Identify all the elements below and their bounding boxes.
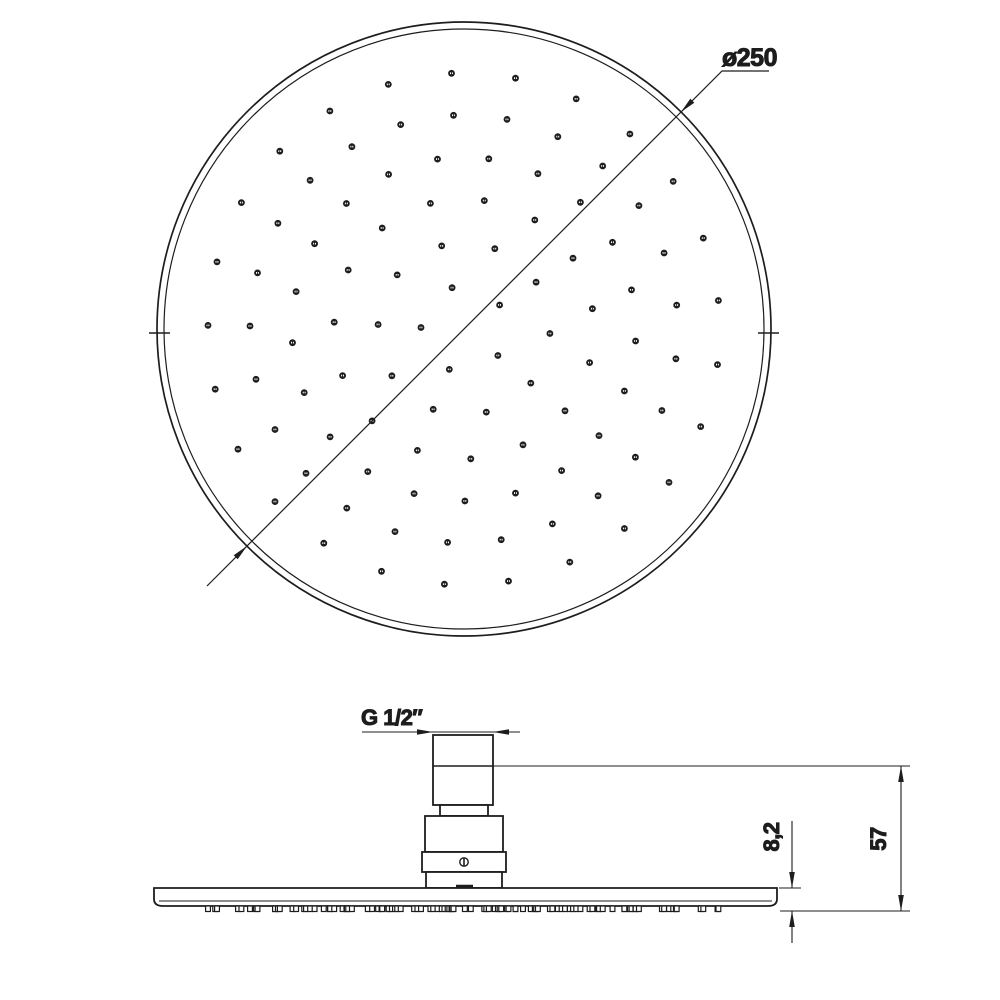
- nozzle-tip-tick: [463, 906, 468, 912]
- nozzle-dot: [438, 243, 445, 250]
- nozzle-dot: [666, 479, 673, 486]
- nozzle-dot: [504, 116, 511, 123]
- nozzle-tip-tick: [662, 906, 667, 912]
- nozzle-dot: [293, 288, 300, 295]
- nozzle-tip-tick: [600, 906, 605, 912]
- nozzle-dot: [673, 302, 680, 309]
- nozzle-dot: [700, 235, 707, 242]
- nozzle-dot: [628, 287, 635, 294]
- nozzle-dot: [214, 259, 221, 266]
- diameter-dimension-line: [207, 71, 769, 586]
- nozzle-dot: [427, 200, 434, 207]
- nozzle-dot: [485, 155, 492, 162]
- dimension-arrowhead: [898, 895, 904, 911]
- nozzle-dot: [418, 324, 425, 331]
- nozzle-tip-tick: [513, 906, 518, 912]
- nozzle-dot: [531, 217, 538, 224]
- technical-drawing-page: ø250: [0, 0, 1000, 1000]
- nozzle-dot: [272, 498, 279, 505]
- nozzle-dot: [212, 386, 219, 393]
- nozzle-dot: [375, 321, 382, 328]
- nozzle-tip-tick: [578, 906, 583, 912]
- nozzle-dot: [343, 505, 350, 512]
- dimension-arrowhead: [417, 729, 433, 735]
- nozzle-dot: [446, 366, 453, 373]
- nozzle-dot: [397, 121, 404, 128]
- nozzle-dot: [349, 143, 356, 150]
- nozzle-dot: [235, 446, 242, 453]
- nozzle-dot: [441, 581, 448, 588]
- nozzle-dot: [339, 372, 346, 379]
- nozzle-dot: [385, 171, 392, 178]
- thickness-arrowheads: [789, 872, 795, 927]
- nozzle-dot: [566, 559, 573, 566]
- nozzle-dot: [491, 245, 498, 252]
- nozzle-dot: [254, 270, 261, 277]
- nozzle-tip-tick: [451, 906, 456, 912]
- connector-neck: [440, 805, 488, 816]
- nozzle-tip-tick: [637, 906, 642, 912]
- nozzle-tip-tick: [206, 906, 211, 912]
- nozzle-dot: [621, 388, 628, 395]
- thickness-label: 8,2: [759, 822, 784, 851]
- nozzle-dot: [276, 148, 283, 155]
- nozzle-dot: [562, 407, 569, 414]
- side-view: [154, 735, 777, 912]
- nozzle-tip-tick: [321, 906, 326, 912]
- nozzle-dot: [392, 528, 399, 535]
- nozzle-dot: [289, 339, 296, 346]
- nozzle-dot: [697, 423, 704, 430]
- nozzle-dot: [498, 536, 505, 543]
- nozzle-dot: [483, 409, 490, 416]
- nozzle-dot: [714, 361, 721, 368]
- nozzle-dot: [554, 133, 561, 140]
- nozzle-dot: [378, 568, 385, 575]
- nozzle-tip-tick: [550, 906, 555, 912]
- nozzle-dot: [495, 352, 502, 359]
- nozzle-dot: [379, 225, 386, 232]
- nozzle-dot: [434, 156, 441, 163]
- nozzle-tip-tick: [277, 906, 282, 912]
- nozzle-dot: [636, 202, 643, 209]
- dimension-diameter: ø250: [207, 44, 777, 586]
- nozzle-tip-tick: [468, 906, 473, 912]
- nozzle-dot: [547, 330, 554, 337]
- nozzle-dot: [450, 112, 457, 119]
- nozzle-tip-tick: [215, 906, 220, 912]
- nozzle-dot: [570, 255, 577, 262]
- dimension-thickness: 8,2: [759, 821, 801, 943]
- nozzle-tip-tick: [486, 906, 491, 912]
- nozzle-tip-tick: [398, 906, 403, 912]
- nozzle-dot: [533, 279, 540, 286]
- dimension-thread: G 1/2″: [361, 705, 520, 735]
- nozzle-tip-tick: [622, 906, 627, 912]
- nozzle-dot: [307, 177, 314, 184]
- nozzle-tip-tick: [350, 906, 355, 912]
- nozzle-dot: [343, 200, 350, 207]
- nozzle-dot: [627, 131, 634, 138]
- nozzle-dot: [558, 467, 565, 474]
- nozzle-dot: [327, 434, 334, 441]
- nozzle-dot: [448, 70, 455, 77]
- swivel-upper-drum: [425, 816, 503, 852]
- nozzle-dot: [715, 297, 722, 304]
- nozzle-tip-tick: [255, 906, 260, 912]
- nozzle-tip-tick: [506, 906, 511, 912]
- nozzle-dot: [205, 322, 212, 329]
- nozzle-dot: [389, 372, 396, 379]
- nozzle-dot: [589, 305, 596, 312]
- nozzle-tip-tick: [674, 906, 679, 912]
- nozzle-dot: [449, 284, 456, 291]
- dimension-arrowhead: [898, 766, 904, 782]
- nozzle-dot: [430, 406, 437, 413]
- height-label: 57: [866, 827, 891, 851]
- nozzle-tip-tick: [536, 906, 541, 912]
- nozzle-dot: [595, 492, 602, 499]
- nozzle-dot: [577, 199, 584, 206]
- nozzle-dot: [303, 470, 310, 477]
- dimension-arrowhead: [493, 729, 509, 735]
- nozzle-dot: [385, 81, 392, 88]
- nozzle-dot: [411, 490, 418, 497]
- nozzle-dot: [505, 578, 512, 585]
- nozzle-dot: [512, 75, 519, 82]
- nozzle-tip-tick: [701, 906, 706, 912]
- dimension-arrowhead: [789, 911, 795, 927]
- nozzle-dot: [301, 389, 308, 396]
- nozzle-dot: [275, 220, 282, 227]
- nozzle-tip-tick: [312, 906, 317, 912]
- nozzle-dot: [444, 539, 451, 546]
- inlet-pipe: [433, 735, 493, 805]
- nozzle-dot: [311, 240, 318, 247]
- nozzle-dot: [414, 447, 421, 454]
- nozzle-tip-tick: [419, 906, 424, 912]
- nozzle-dot: [670, 178, 677, 185]
- nozzle-dot: [331, 319, 338, 326]
- nozzle-dot: [394, 272, 401, 279]
- nozzle-dot: [573, 96, 580, 103]
- nozzle-dot: [238, 199, 245, 206]
- nozzle-tip-tick: [248, 906, 253, 912]
- shower-plate: [154, 888, 777, 906]
- nozzle-tip-tick: [610, 906, 615, 912]
- nozzle-tip-tick: [294, 906, 299, 912]
- nozzle-dot: [673, 355, 680, 362]
- nozzle-dot: [462, 498, 469, 505]
- nozzle-tip-tick: [239, 906, 244, 912]
- nozzle-dot: [247, 323, 254, 330]
- nozzle-dot: [621, 525, 628, 532]
- nozzle-dot: [596, 432, 603, 439]
- nozzle-dot: [632, 454, 639, 461]
- dimension-arrowhead: [789, 872, 795, 888]
- nozzle-dot: [661, 250, 668, 257]
- nozzle-dot: [481, 197, 488, 204]
- nozzle-dot: [512, 490, 519, 497]
- nozzle-dot: [467, 455, 474, 462]
- nozzle-dot: [320, 540, 327, 547]
- nozzle-dot: [520, 441, 527, 448]
- nozzle-dot: [345, 267, 352, 274]
- nozzle-dot: [609, 239, 616, 246]
- nozzle-dot: [599, 163, 606, 170]
- nozzle-dot: [527, 380, 534, 387]
- nozzle-tip-tick: [380, 906, 385, 912]
- nozzle-tip-tick: [590, 906, 595, 912]
- nozzle-tip-tick: [563, 906, 568, 912]
- nozzle-tip-tick: [499, 906, 504, 912]
- nozzle-dot: [632, 338, 639, 345]
- nozzle-dots: [205, 70, 722, 588]
- nozzle-dot: [327, 108, 334, 115]
- nozzle-tip-tick: [332, 906, 337, 912]
- top-view: ø250: [149, 22, 779, 636]
- nozzle-dot: [586, 359, 593, 366]
- nozzle-tip-tick: [521, 906, 526, 912]
- nozzle-tip-tick: [370, 906, 375, 912]
- nozzle-dot: [549, 521, 556, 528]
- nozzle-dot: [659, 407, 666, 414]
- nozzle-dot: [364, 468, 371, 475]
- nozzle-dot: [496, 302, 503, 309]
- nozzle-dot: [272, 426, 279, 433]
- thread-label: G 1/2″: [361, 705, 423, 730]
- dimension-height: 57: [866, 766, 904, 911]
- nozzle-dot: [535, 170, 542, 177]
- nozzle-tip-tick: [716, 906, 721, 912]
- nozzle-dot: [253, 376, 260, 383]
- shower-head-technical-drawing: ø250: [0, 0, 1000, 1000]
- diameter-label: ø250: [722, 44, 777, 72]
